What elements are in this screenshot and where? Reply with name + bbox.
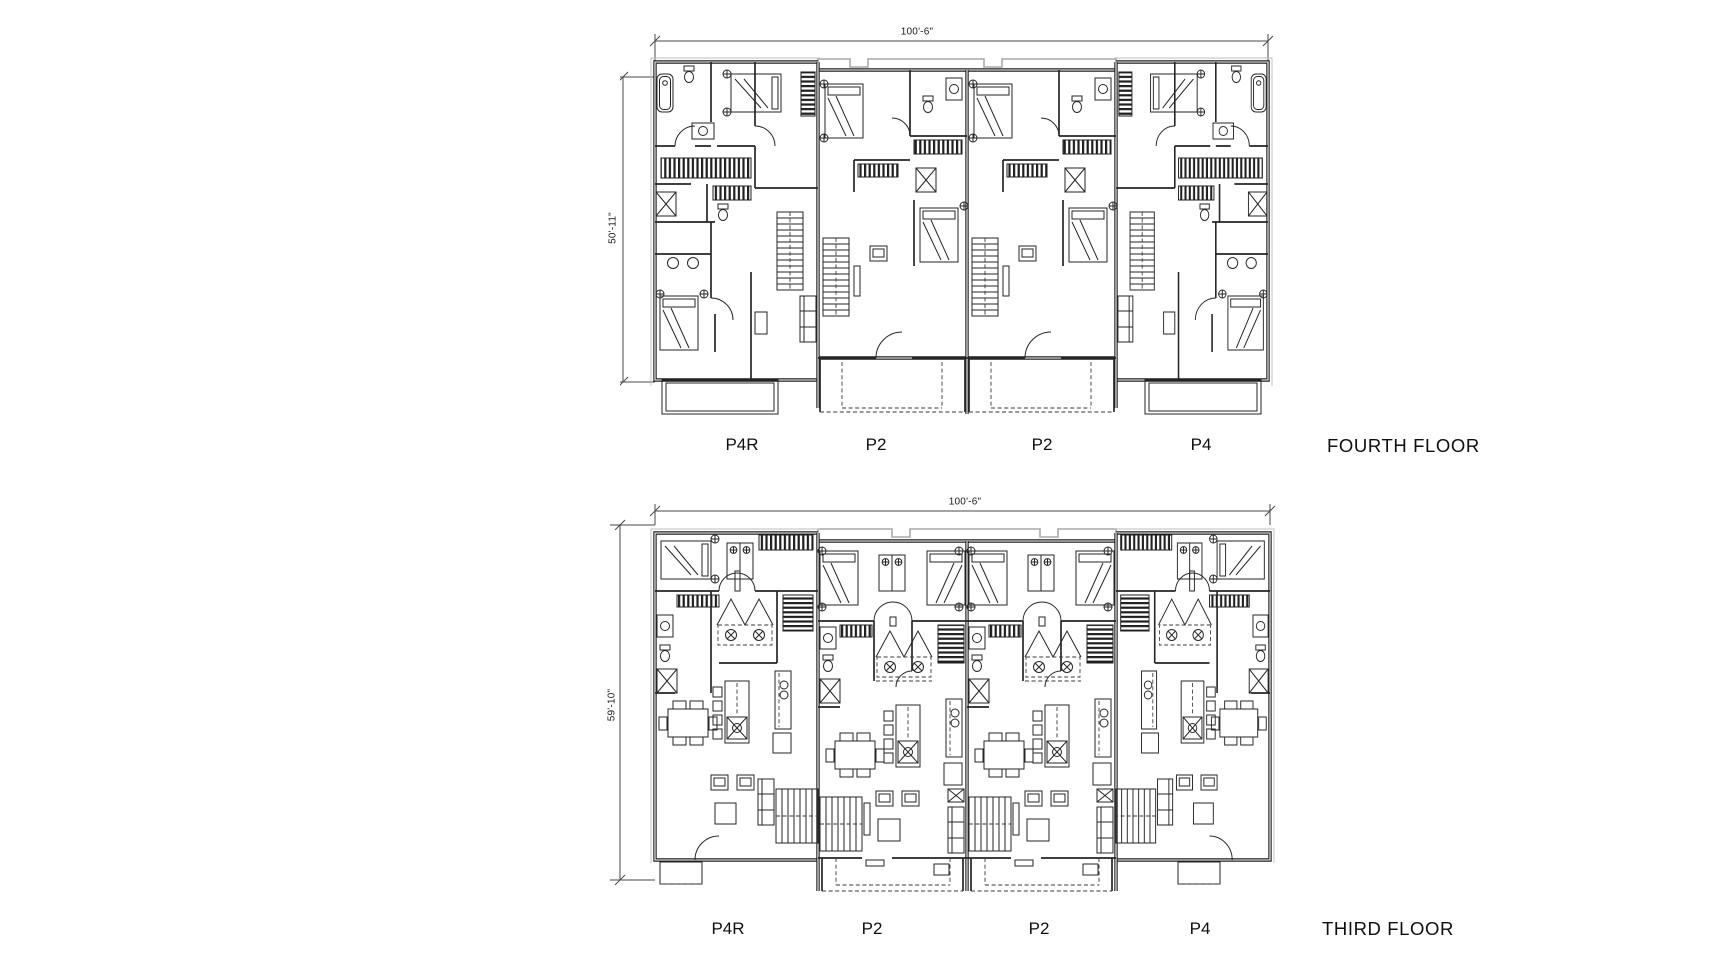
third-floor-title: THIRD FLOOR xyxy=(1322,918,1454,940)
unit-label-p4-fourth: P4 xyxy=(1191,435,1212,455)
third-floor-parapet xyxy=(818,529,1116,539)
unit-p2-left-plan-fourth xyxy=(818,70,968,412)
unit-p2-left-plan-third xyxy=(818,547,967,891)
unit-label-p2a-fourth: P2 xyxy=(866,435,887,455)
unit-label-p4r-third: P4R xyxy=(711,919,744,939)
fourth-floor-shell xyxy=(655,62,1268,414)
fourth-floor-balconies xyxy=(662,380,1261,414)
fourth-floor-title: FOURTH FLOOR xyxy=(1327,435,1480,457)
fourth-floor-height-dimension-line xyxy=(620,72,655,387)
fourth-floor-height-dim: 50'-11" xyxy=(608,212,619,244)
unit-label-p2b-fourth: P2 xyxy=(1032,435,1053,455)
unit-p4-plan-third xyxy=(1116,535,1270,860)
unit-label-p4-third: P4 xyxy=(1190,919,1211,939)
third-floor-porches xyxy=(660,862,1220,884)
unit-p2-right-plan-fourth xyxy=(967,70,1117,412)
third-floor-height-dim: 59'-10" xyxy=(607,689,618,721)
unit-p4r-plan-fourth xyxy=(655,62,818,380)
unit-label-p2a-third: P2 xyxy=(862,919,883,939)
unit-p2-right-plan-third xyxy=(967,547,1116,891)
unit-label-p4r-fourth: P4R xyxy=(725,435,758,455)
fourth-floor-drawing xyxy=(620,28,1280,428)
unit-p4r-plan-third xyxy=(655,535,818,860)
fourth-floor-width-dim: 100'-6" xyxy=(901,27,933,38)
third-floor-drawing xyxy=(610,495,1290,910)
unit-label-p2b-third: P2 xyxy=(1029,919,1050,939)
third-floor-width-dim: 100'-6" xyxy=(949,497,981,508)
drawing-sheet: 100'-6" 50'-11" P4R P2 P2 P4 FOURTH FLOO… xyxy=(0,0,1712,956)
unit-p4-plan-fourth xyxy=(1116,62,1268,380)
